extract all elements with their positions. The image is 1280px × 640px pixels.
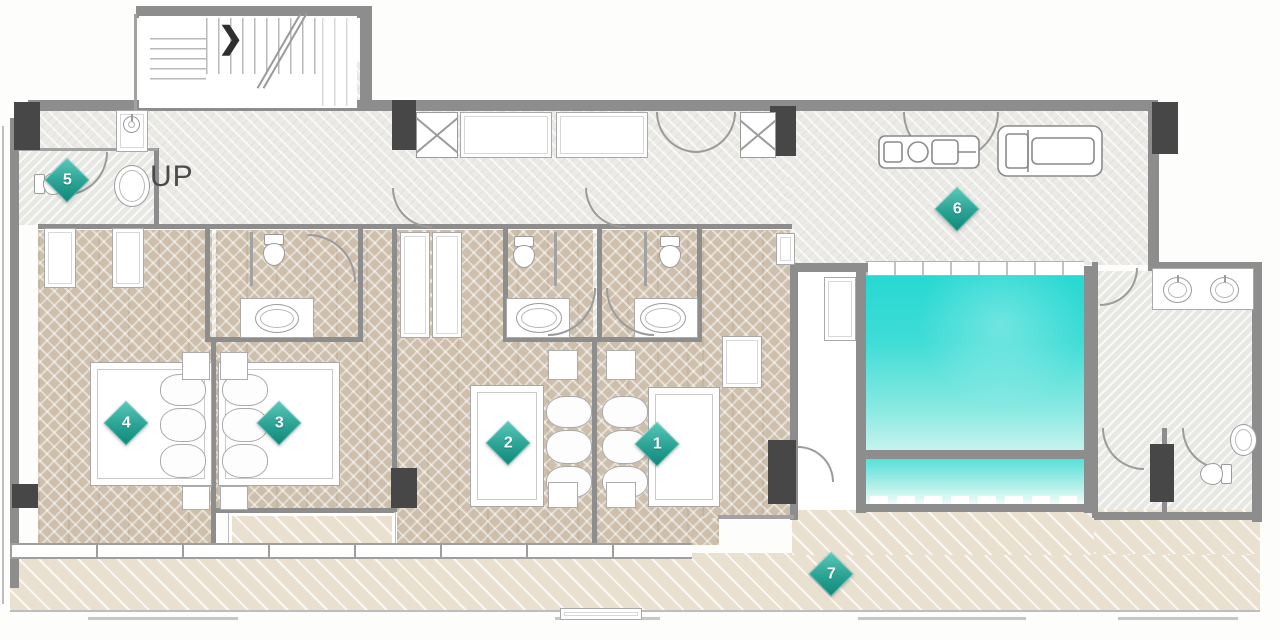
- closet: [460, 112, 552, 158]
- wardrobe: [400, 232, 430, 338]
- duvet-icon: [160, 444, 206, 478]
- nightstand: [606, 482, 636, 508]
- terrace-deck: [10, 553, 1260, 611]
- wall-segment: [1094, 512, 1260, 520]
- nightstand: [606, 350, 636, 380]
- gym-equipment-icons: [878, 122, 1104, 180]
- sink-icon: [114, 165, 150, 207]
- floor-plan-canvas: ❯ UP: [0, 0, 1280, 640]
- balcony-edge: [2, 126, 4, 604]
- wall-segment: [360, 6, 372, 111]
- toilet-icon: [1200, 462, 1232, 486]
- closet: [112, 228, 144, 288]
- wall-segment: [1092, 262, 1098, 518]
- side-deck: [1094, 518, 1260, 554]
- sink-icon: [1210, 277, 1239, 303]
- shaft: [416, 112, 458, 158]
- wall-segment: [250, 232, 253, 286]
- column: [1150, 444, 1174, 502]
- column: [12, 484, 38, 508]
- nightstand: [548, 350, 578, 380]
- nightstand: [220, 352, 248, 380]
- water-edge-waves: [870, 496, 1080, 504]
- closet: [556, 112, 648, 158]
- duvet-icon: [160, 408, 206, 442]
- appliance-dial-icon: [123, 116, 140, 133]
- pillow-icon: [546, 396, 592, 428]
- wall-segment: [1084, 266, 1092, 513]
- wall-segment: [856, 450, 1094, 459]
- sink-icon: [1163, 277, 1192, 303]
- sink-icon: [1230, 424, 1257, 456]
- nightstand: [220, 486, 248, 510]
- shaft: [740, 112, 776, 158]
- wall-segment: [718, 515, 794, 519]
- toilet-icon: [512, 236, 536, 268]
- stairs-up-label: UP: [150, 160, 194, 194]
- column: [14, 102, 40, 150]
- wall-segment: [358, 228, 363, 342]
- pool-coping: [866, 261, 1084, 276]
- nightstand: [182, 486, 210, 510]
- railing-dash: [858, 617, 1026, 620]
- wall-segment: [592, 340, 597, 545]
- pillow-icon: [602, 396, 648, 428]
- terrace-step: [560, 608, 642, 620]
- toilet-icon: [262, 234, 286, 266]
- wall-segment: [856, 504, 1094, 512]
- wall-segment: [205, 228, 210, 342]
- toilet-icon: [658, 236, 682, 268]
- wall-segment: [134, 14, 137, 110]
- sink-icon: [255, 304, 299, 333]
- window-glazing: [10, 543, 692, 559]
- outdoor-storage: [824, 277, 856, 341]
- shaft: [776, 233, 795, 265]
- nightstand: [182, 352, 210, 380]
- closet: [722, 336, 762, 388]
- stairs-direction-arrow-icon: ❯: [218, 24, 243, 54]
- wall-segment: [856, 266, 866, 513]
- closet: [44, 228, 76, 288]
- railing-dash: [1118, 617, 1238, 620]
- nightstand: [548, 482, 578, 508]
- column: [391, 468, 417, 508]
- wall-segment: [10, 118, 19, 588]
- column: [768, 440, 796, 504]
- wall-segment: [38, 224, 792, 229]
- wardrobe: [432, 232, 462, 338]
- column: [1152, 102, 1178, 154]
- railing-dash: [88, 617, 238, 620]
- wall-segment: [597, 228, 602, 342]
- duvet-icon: [546, 430, 592, 464]
- wall-segment: [554, 232, 557, 286]
- stair-treads: [322, 18, 356, 106]
- wall-segment: [644, 232, 647, 286]
- duvet-icon: [222, 444, 268, 478]
- column: [392, 100, 416, 150]
- stair-treads: [150, 38, 206, 80]
- swimming-pool: [866, 275, 1084, 451]
